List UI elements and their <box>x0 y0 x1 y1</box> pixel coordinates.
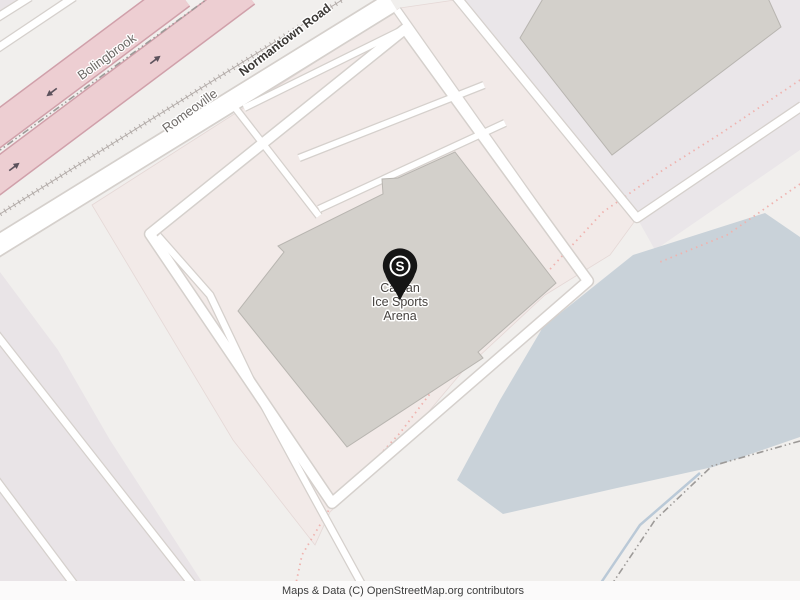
poi-label-line3: Arena <box>383 309 416 323</box>
map-view[interactable]: Bolingbrook Romeoville Normantown Road C… <box>0 0 800 600</box>
map-canvas[interactable]: Bolingbrook Romeoville Normantown Road C… <box>0 0 800 600</box>
attribution-text: Maps & Data (C) OpenStreetMap.org contri… <box>282 585 525 597</box>
attribution-bar: Maps & Data (C) OpenStreetMap.org contri… <box>0 581 800 600</box>
marker-logo-glyph: S <box>395 259 404 274</box>
